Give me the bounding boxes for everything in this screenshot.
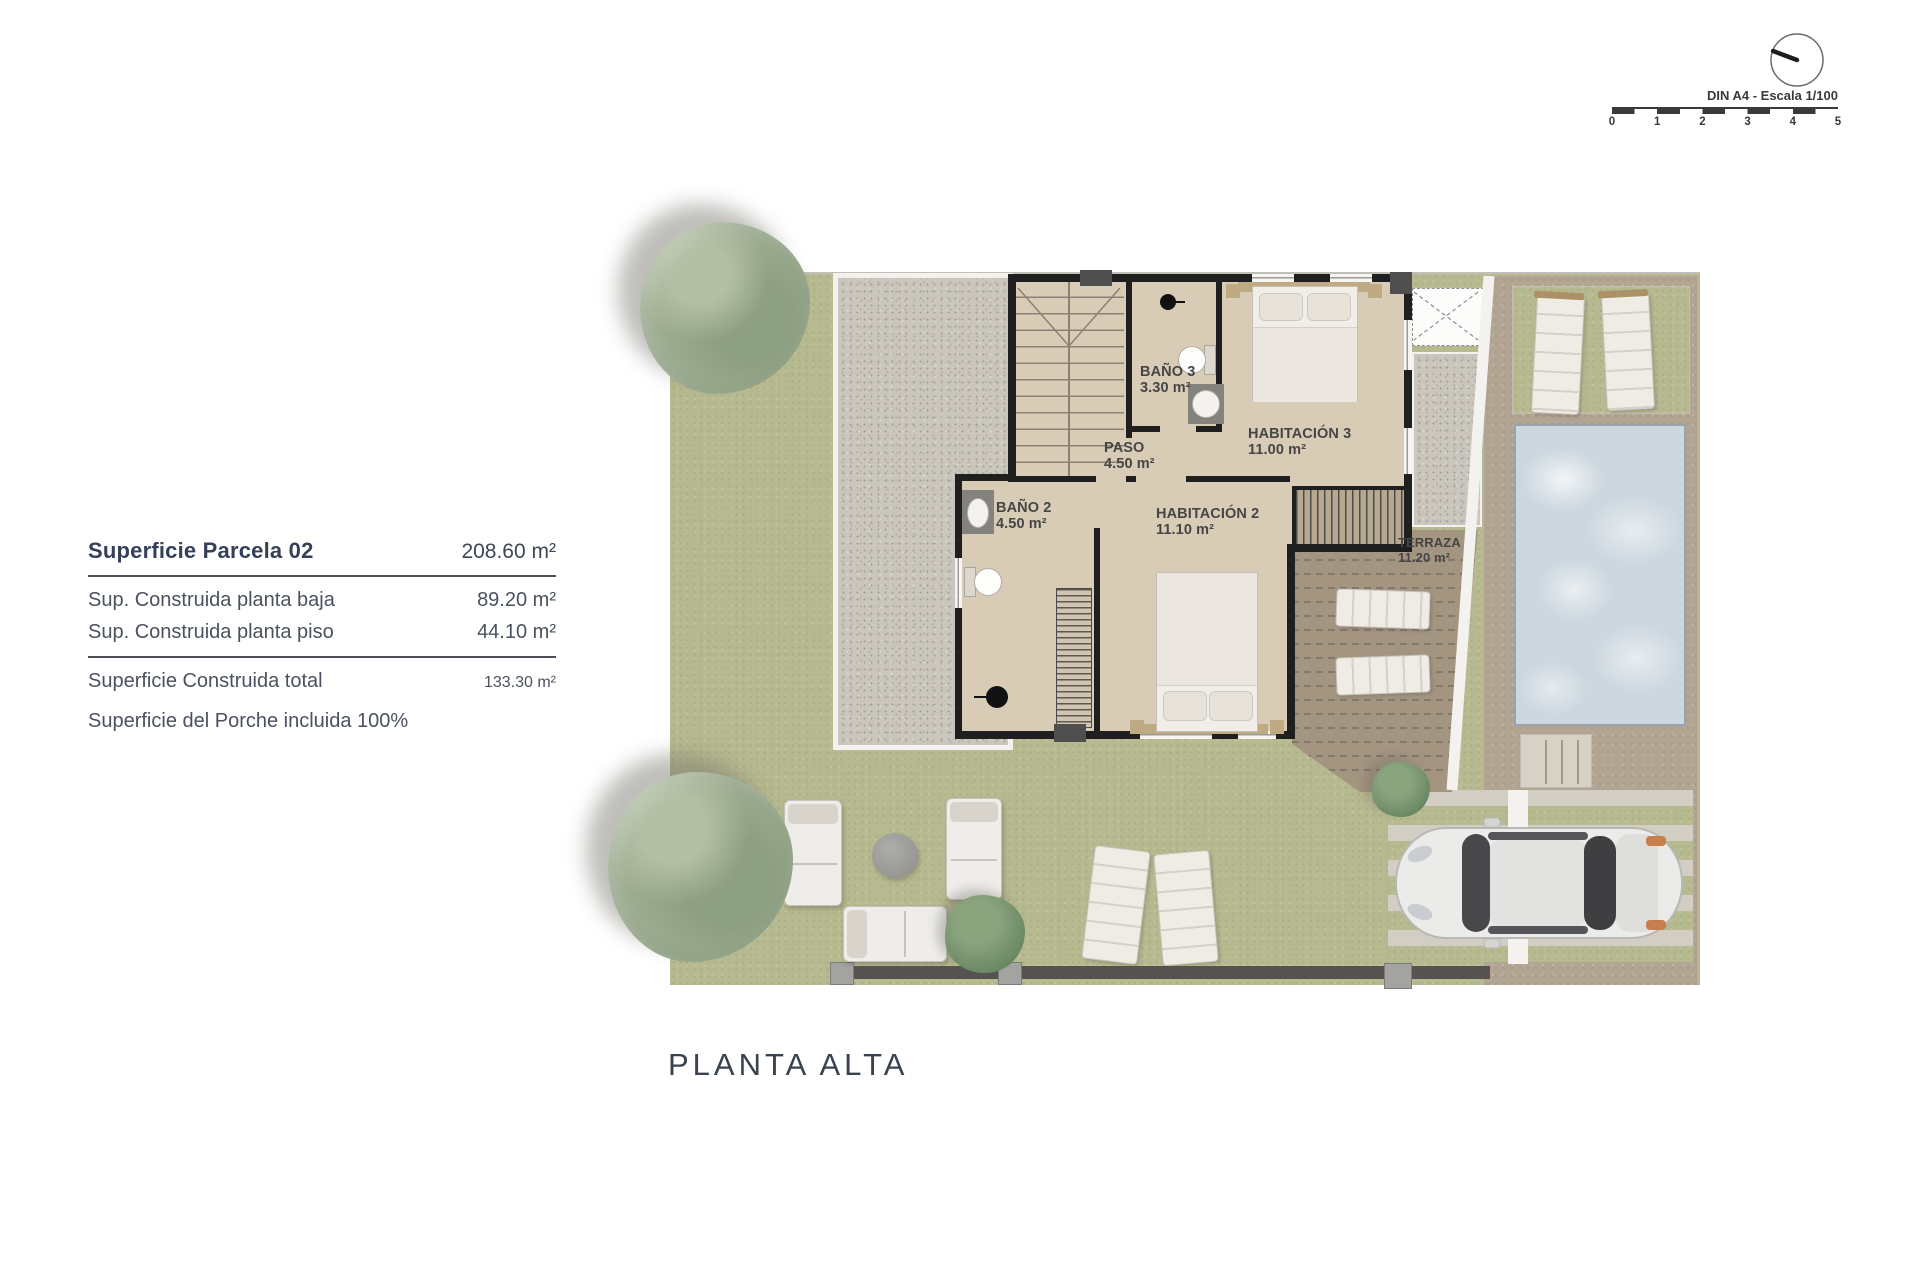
room-label-habitacion3: HABITACIÓN 3 11.00 m² [1248,426,1351,458]
built-total-row: Superficie Construida total 133.30 m² [88,670,556,693]
room-name: HABITACIÓN 3 [1248,426,1351,442]
built-upper-value: 44.10 m² [477,621,556,644]
sofa-back [788,804,838,824]
bush [1372,762,1430,817]
bed3-nightstand [1226,284,1240,298]
blanket [1253,327,1357,402]
pool-lounger [1601,293,1655,411]
room-label-bano2: BAÑO 2 4.50 m² [996,500,1051,532]
room-area: 11.20 m² [1398,551,1461,566]
info-panel: Superficie Parcela 02 208.60 m² Sup. Con… [88,538,556,733]
pillar-block [1390,272,1412,294]
window [1330,274,1372,282]
parcel-title-row: Superficie Parcela 02 208.60 m² [88,538,556,564]
window [1404,428,1412,474]
wall [1126,476,1136,482]
sofa-seam [904,911,906,957]
wall [1404,274,1412,552]
toilet-bath2 [964,566,1002,596]
tick-4: 4 [1790,116,1796,128]
sofa-back [950,802,998,822]
step-treads [1546,740,1578,784]
parcel-area-value: 208.60 m² [461,540,556,564]
sink-basin [1192,390,1220,418]
wall [1287,546,1295,739]
window [1404,320,1412,370]
lounger-headrest [1598,289,1648,299]
terrace-lounger [1335,654,1430,695]
fence-post [1384,963,1412,989]
pillow [1307,293,1351,321]
north-compass-icon [1768,30,1826,88]
built-upper-label: Sup. Construida planta piso [88,621,334,644]
lounger-headrest [1534,291,1584,301]
bed-room2 [1156,572,1258,732]
tick-1: 1 [1654,116,1660,128]
fixture-arm [974,696,988,698]
tick-5: 5 [1835,116,1841,128]
shower-drain [986,686,1008,708]
wall [1287,544,1412,552]
pillar-block [1080,270,1112,286]
room-label-terraza: TERRAZA 11.20 m² [1398,536,1461,565]
car [1390,814,1688,952]
wall [1126,426,1160,432]
plan-title: PLANTA ALTA [668,1047,908,1083]
porch-note: Superficie del Porche incluida 100% [88,710,556,733]
scale-label: DIN A4 - Escala 1/100 [1610,88,1838,103]
built-total-label: Superficie Construida total [88,670,323,693]
terrace-closet-hatch [1292,486,1412,552]
pillow [1209,691,1253,721]
sink-bath2 [962,490,994,534]
pillow [1163,691,1207,721]
sofa-seam [789,863,837,865]
light-fixture [1160,294,1176,310]
wardrobe-hatch [1056,588,1092,728]
parcel-title: Superficie Parcela 02 [88,538,314,564]
fixture-arm [1175,301,1185,303]
wall [1094,528,1100,731]
scale-ruler [1612,107,1838,114]
wall [955,474,1015,481]
garden-table [872,833,918,878]
pool-lounger [1531,295,1585,415]
room-label-bano3: BAÑO 3 3.30 m² [1140,364,1195,396]
wall [1196,426,1220,432]
terrace-lounger [1335,588,1430,629]
pillar-block [1054,724,1086,742]
tick-2: 2 [1699,116,1705,128]
fence-post [830,962,854,985]
stair-center-line [1068,280,1070,478]
divider [88,575,556,577]
window [1252,274,1294,282]
bed2-nightstand [1270,720,1284,734]
bed2-nightstand [1130,720,1144,734]
divider [88,656,556,658]
blanket [1157,573,1257,686]
room-area: 4.50 m² [996,516,1051,532]
room-label-habitacion2: HABITACIÓN 2 11.10 m² [1156,506,1259,538]
sink-basin [967,498,989,528]
room-name: HABITACIÓN 2 [1156,506,1259,522]
room-name: PASO [1104,440,1155,456]
scale-ruler-ticks: 0 1 2 3 4 5 [1612,116,1838,132]
sofa-seam [951,859,997,861]
room-area: 11.00 m² [1248,442,1351,458]
wall [1008,274,1016,482]
garden-sofa [843,906,947,962]
built-upper-row: Sup. Construida planta piso 44.10 m² [88,621,556,644]
toilet-bowl [974,568,1002,596]
bed-room3 [1252,286,1358,402]
built-total-value: 133.30 m² [484,674,556,692]
room-area: 4.50 m² [1104,456,1155,472]
room-area: 11.10 m² [1156,522,1259,538]
window [955,558,962,608]
pergola-diagonals [1414,292,1478,340]
garden-sofa [946,798,1002,900]
tick-0: 0 [1609,116,1615,128]
sofa-back [847,910,867,958]
built-ground-label: Sup. Construida planta baja [88,589,335,612]
room-label-paso: PASO 4.50 m² [1104,440,1155,472]
wall [1008,476,1096,482]
built-ground-row: Sup. Construida planta baja 89.20 m² [88,589,556,612]
floor-plan-page: Superficie Parcela 02 208.60 m² Sup. Con… [0,0,1920,1280]
wall [1186,476,1290,482]
room-name: BAÑO 3 [1140,364,1195,380]
pillow [1259,293,1303,321]
wall [1126,274,1132,438]
room-area: 3.30 m² [1140,380,1195,396]
tick-3: 3 [1744,116,1750,128]
room-name: TERRAZA [1398,536,1461,551]
bed3-nightstand [1368,284,1382,298]
bush [945,895,1025,973]
built-ground-value: 89.20 m² [477,589,556,612]
room-name: BAÑO 2 [996,500,1051,516]
sun-lounger [1153,850,1219,966]
